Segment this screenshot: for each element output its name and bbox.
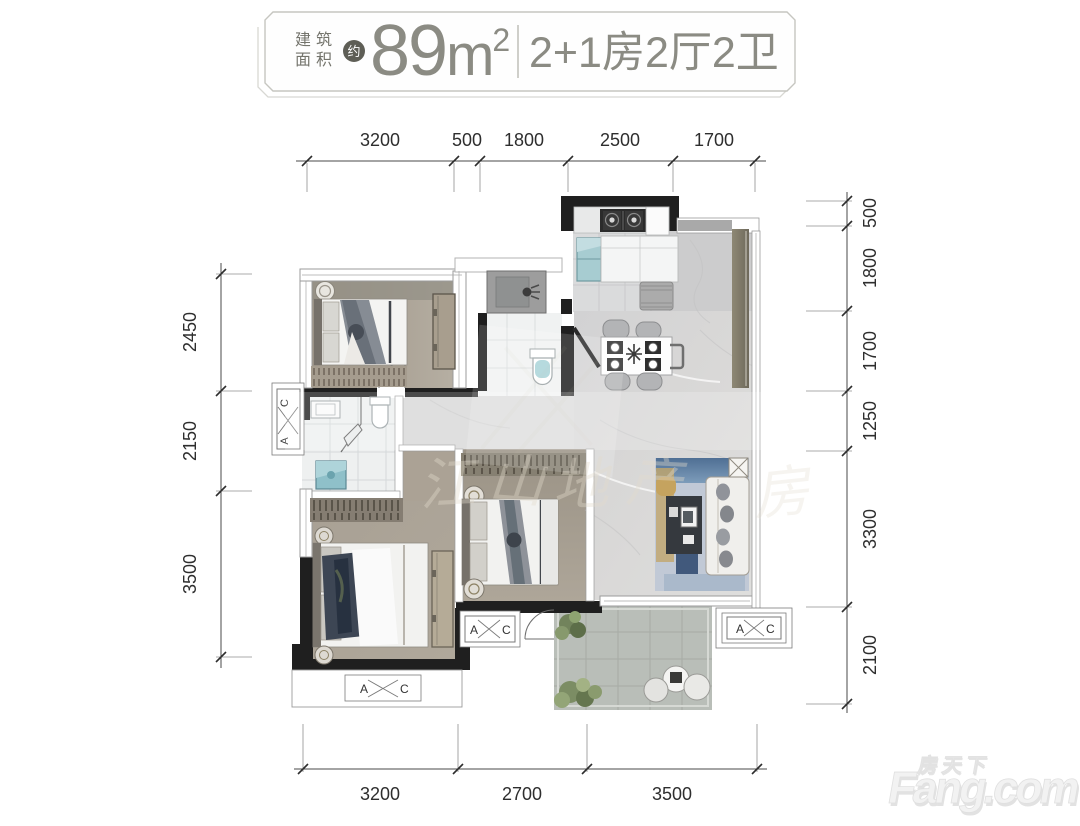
- svg-text:约: 约: [347, 44, 360, 59]
- svg-text:500: 500: [860, 198, 880, 228]
- svg-text:山: 山: [486, 447, 549, 514]
- svg-text:89m2: 89m2: [370, 11, 509, 91]
- svg-text:2150: 2150: [180, 421, 200, 461]
- svg-text:3200: 3200: [360, 130, 400, 150]
- svg-text:1700: 1700: [694, 130, 734, 150]
- svg-text:房: 房: [750, 458, 816, 527]
- svg-text:1700: 1700: [860, 331, 880, 371]
- svg-text:3500: 3500: [180, 554, 200, 594]
- svg-text:江: 江: [417, 451, 482, 517]
- svg-text:3300: 3300: [860, 509, 880, 549]
- svg-text:A: A: [470, 623, 478, 637]
- svg-text:产: 产: [624, 449, 688, 515]
- svg-text:C: C: [766, 622, 775, 636]
- svg-text:2500: 2500: [600, 130, 640, 150]
- svg-text:面积: 面积: [295, 51, 337, 69]
- svg-text:2+1房2厅2卫: 2+1房2厅2卫: [529, 29, 779, 77]
- svg-text:1800: 1800: [504, 130, 544, 150]
- svg-text:2100: 2100: [860, 635, 880, 675]
- svg-text:Fang.com: Fang.com: [884, 762, 1080, 813]
- svg-text:2700: 2700: [502, 784, 542, 804]
- svg-text:1250: 1250: [860, 401, 880, 441]
- svg-text:地: 地: [551, 452, 614, 517]
- svg-text:500: 500: [452, 130, 482, 150]
- svg-text:C: C: [502, 623, 511, 637]
- svg-text:3500: 3500: [652, 784, 692, 804]
- svg-text:1800: 1800: [860, 248, 880, 288]
- svg-text:C: C: [400, 682, 409, 696]
- svg-text:2450: 2450: [180, 312, 200, 352]
- svg-text:3200: 3200: [360, 784, 400, 804]
- svg-text:建筑: 建筑: [295, 31, 337, 49]
- svg-text:A: A: [736, 622, 744, 636]
- svg-text:A: A: [360, 682, 368, 696]
